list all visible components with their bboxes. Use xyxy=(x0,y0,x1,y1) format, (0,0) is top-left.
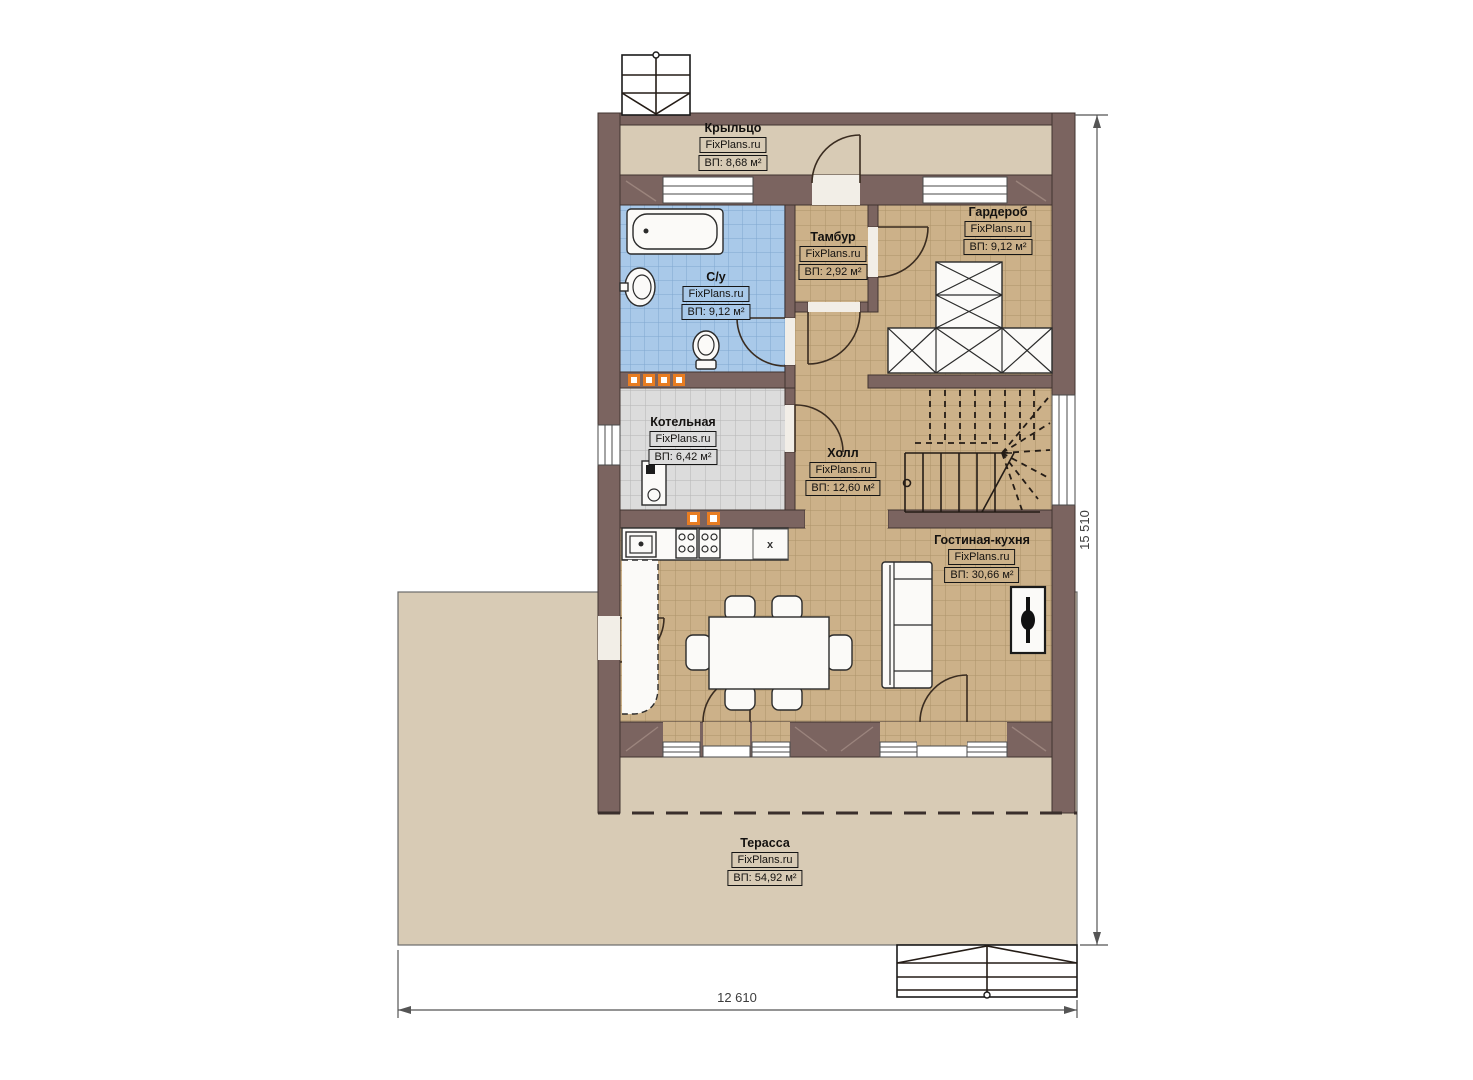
kitchen-sink xyxy=(626,532,656,557)
dining-table xyxy=(709,617,829,689)
room-name: Крыльцо xyxy=(705,121,762,135)
living-window-3 xyxy=(880,722,917,757)
room-label-wardrobe: Гардероб FixPlans.ru ВП: 9,12 м² xyxy=(963,205,1032,255)
brand-box: FixPlans.ru xyxy=(809,462,876,478)
room-name: Терасса xyxy=(740,836,790,850)
floor-plan-page: x xyxy=(0,0,1473,1080)
toilet xyxy=(693,331,719,369)
room-name: Котельная xyxy=(650,415,715,429)
room-name: Гардероб xyxy=(968,205,1027,219)
porch-window-right xyxy=(923,177,1007,203)
dimension-width-label: 12 610 xyxy=(717,990,757,1005)
living-window-1 xyxy=(663,722,700,757)
room-label-living-kitchen: Гостиная-кухня FixPlans.ru ВП: 30,66 м² xyxy=(934,533,1030,583)
room-label-hall: Холл FixPlans.ru ВП: 12,60 м² xyxy=(805,446,880,496)
room-label-terrace: Терасса FixPlans.ru ВП: 54,92 м² xyxy=(727,836,802,886)
terrace-door-2 xyxy=(917,722,967,757)
living-window-2 xyxy=(752,722,790,757)
brand-box: FixPlans.ru xyxy=(731,852,798,868)
area-box: ВП: 54,92 м² xyxy=(727,870,802,886)
kitchen-appliance-box: x xyxy=(753,529,788,559)
room-label-porch: Крыльцо FixPlans.ru ВП: 8,68 м² xyxy=(698,121,767,171)
room-name: Гостиная-кухня xyxy=(934,533,1030,547)
room-name: Холл xyxy=(827,446,858,460)
appliance-x-marker: x xyxy=(767,539,774,551)
area-box: ВП: 9,12 м² xyxy=(681,304,750,320)
tv-cabinet xyxy=(1011,587,1045,653)
dimension-height-label: 15 510 xyxy=(1077,510,1092,550)
room-name: С/у xyxy=(706,270,725,284)
room-label-tambour: Тамбур FixPlans.ru ВП: 2,92 м² xyxy=(798,230,867,280)
brand-box: FixPlans.ru xyxy=(699,137,766,153)
boiler-window xyxy=(598,425,620,465)
room-label-bathroom: С/у FixPlans.ru ВП: 9,12 м² xyxy=(681,270,750,320)
porch-floor xyxy=(618,123,1054,177)
entry-steps-bottom xyxy=(897,945,1077,998)
dimension-right: 15 510 xyxy=(1075,115,1108,945)
sofa xyxy=(882,562,932,688)
area-box: ВП: 30,66 м² xyxy=(944,567,1019,583)
room-label-boiler: Котельная FixPlans.ru ВП: 6,42 м² xyxy=(648,415,717,465)
area-box: ВП: 12,60 м² xyxy=(805,480,880,496)
terrace-door-1 xyxy=(703,722,750,757)
area-box: ВП: 8,68 м² xyxy=(698,155,767,171)
porch-window-left xyxy=(663,177,753,203)
brand-box: FixPlans.ru xyxy=(799,246,866,262)
brand-box: FixPlans.ru xyxy=(964,221,1031,237)
brand-box: FixPlans.ru xyxy=(682,286,749,302)
entry-steps-top xyxy=(622,52,690,115)
boiler-unit xyxy=(642,461,666,505)
room-name: Тамбур xyxy=(810,230,855,244)
area-box: ВП: 2,92 м² xyxy=(798,264,867,280)
stairs-window xyxy=(1052,395,1075,505)
brand-box: FixPlans.ru xyxy=(948,549,1015,565)
area-box: ВП: 6,42 м² xyxy=(648,449,717,465)
bathtub xyxy=(627,209,723,254)
brand-box: FixPlans.ru xyxy=(649,431,716,447)
living-window-4 xyxy=(967,722,1007,757)
area-box: ВП: 9,12 м² xyxy=(963,239,1032,255)
